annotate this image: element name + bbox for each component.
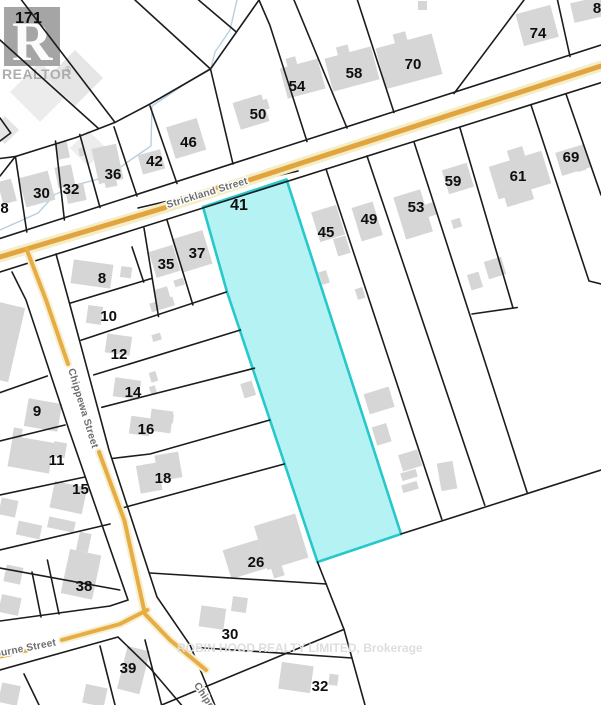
- svg-text:69: 69: [563, 149, 580, 166]
- svg-text:11: 11: [49, 452, 65, 469]
- svg-text:35: 35: [158, 256, 175, 273]
- svg-text:38: 38: [76, 578, 93, 595]
- svg-text:36: 36: [105, 166, 122, 183]
- svg-text:®: ®: [65, 65, 71, 74]
- svg-text:32: 32: [312, 678, 329, 695]
- svg-text:9: 9: [33, 403, 41, 420]
- svg-text:171: 171: [15, 10, 42, 27]
- svg-text:42: 42: [146, 153, 163, 170]
- svg-text:49: 49: [361, 211, 378, 228]
- svg-text:70: 70: [405, 56, 422, 73]
- svg-text:26: 26: [248, 554, 265, 571]
- svg-text:12: 12: [111, 346, 128, 363]
- svg-text:74: 74: [530, 25, 547, 42]
- svg-text:58: 58: [346, 65, 363, 82]
- svg-text:39: 39: [120, 660, 137, 677]
- svg-text:ROBIN HOOD REALTY LIMITED, Bro: ROBIN HOOD REALTY LIMITED, Brokerage: [177, 641, 423, 655]
- svg-text:37: 37: [189, 245, 206, 262]
- svg-text:45: 45: [318, 224, 335, 241]
- svg-text:8: 8: [98, 270, 106, 287]
- svg-text:53: 53: [408, 199, 425, 216]
- svg-text:46: 46: [180, 134, 197, 151]
- svg-text:30: 30: [33, 185, 50, 202]
- svg-text:54: 54: [289, 78, 306, 95]
- svg-text:41: 41: [230, 197, 248, 214]
- svg-text:16: 16: [138, 421, 155, 438]
- svg-text:59: 59: [445, 173, 462, 190]
- svg-text:32: 32: [63, 181, 80, 198]
- svg-text:8: 8: [0, 200, 8, 217]
- svg-text:50: 50: [250, 106, 267, 123]
- svg-text:15: 15: [72, 481, 89, 498]
- svg-text:8: 8: [593, 0, 601, 17]
- svg-text:14: 14: [125, 384, 142, 401]
- svg-text:61: 61: [510, 168, 527, 185]
- svg-text:10: 10: [100, 308, 117, 325]
- svg-text:18: 18: [155, 470, 172, 487]
